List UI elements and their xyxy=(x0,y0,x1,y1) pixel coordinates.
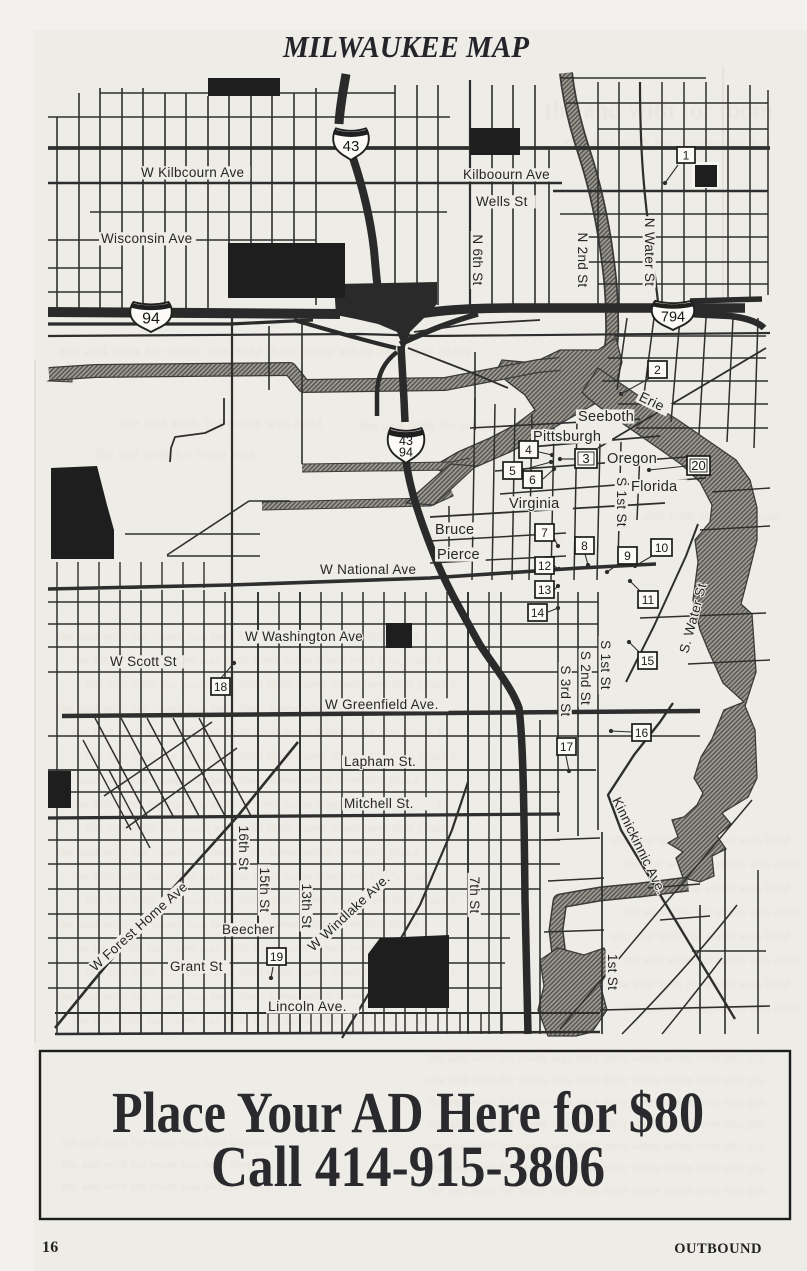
svg-text:W National Ave: W National Ave xyxy=(320,562,416,577)
svg-text:Seeboth: Seeboth xyxy=(578,409,634,425)
svg-text:Mitchell St.: Mitchell St. xyxy=(344,796,414,811)
svg-text:N 6th St: N 6th St xyxy=(470,234,485,285)
svg-text:the and with for room was held: the and with for room was held their som… xyxy=(72,1012,442,1027)
svg-text:794: 794 xyxy=(661,310,685,326)
svg-text:3: 3 xyxy=(582,451,589,466)
svg-text:the and with for room was held: the and with for room was held their som… xyxy=(58,628,428,643)
svg-text:S 1st St: S 1st St xyxy=(598,640,613,690)
svg-text:94: 94 xyxy=(399,446,413,460)
svg-text:12: 12 xyxy=(538,559,552,573)
svg-text:5: 5 xyxy=(509,464,516,478)
svg-text:13th St: 13th St xyxy=(299,884,314,929)
svg-text:W Kilbcourn Ave: W Kilbcourn Ave xyxy=(141,165,244,180)
svg-text:W Greenfield Ave.: W Greenfield Ave. xyxy=(325,697,439,712)
svg-text:1: 1 xyxy=(683,148,690,162)
svg-text:Pittsburgh: Pittsburgh xyxy=(533,429,601,445)
svg-text:4: 4 xyxy=(525,443,532,457)
svg-text:7: 7 xyxy=(541,526,548,540)
svg-text:Florida: Florida xyxy=(631,479,678,495)
svg-text:Call 414-915-3806: Call 414-915-3806 xyxy=(211,1134,605,1199)
svg-text:94: 94 xyxy=(142,310,160,327)
svg-text:Oregon: Oregon xyxy=(607,451,657,467)
svg-text:the and with for room was held: the and with for room was held xyxy=(120,416,322,432)
svg-text:11: 11 xyxy=(642,593,655,607)
svg-text:8: 8 xyxy=(581,539,588,553)
svg-text:9: 9 xyxy=(624,549,631,563)
svg-text:16: 16 xyxy=(635,726,649,740)
svg-text:15: 15 xyxy=(641,654,655,668)
svg-text:the and with for room was held: the and with for room was held xyxy=(622,904,799,919)
svg-text:2: 2 xyxy=(654,363,661,377)
svg-text:W Washington Ave: W Washington Ave xyxy=(245,629,363,644)
svg-text:20: 20 xyxy=(691,458,705,473)
svg-text:10: 10 xyxy=(655,541,669,555)
svg-text:W Scott St: W Scott St xyxy=(110,654,177,669)
svg-text:19: 19 xyxy=(270,950,284,964)
svg-text:14: 14 xyxy=(531,606,545,620)
svg-text:13: 13 xyxy=(538,583,552,597)
svg-text:Wisconsin Ave: Wisconsin Ave xyxy=(101,231,192,246)
svg-text:the and with for room was: the and with for room was xyxy=(95,447,255,462)
svg-text:15th St: 15th St xyxy=(257,868,272,913)
svg-text:MILWAUKEE MAP: MILWAUKEE MAP xyxy=(282,30,529,64)
svg-text:7th St: 7th St xyxy=(467,876,482,913)
svg-text:Wells St: Wells St xyxy=(476,194,528,209)
svg-text:the and with for room was held: the and with for room was held xyxy=(622,952,799,967)
svg-text:the and with for room was held: the and with for room was held their som… xyxy=(428,1051,765,1065)
svg-text:18: 18 xyxy=(214,680,228,694)
svg-text:S 1st St: S 1st St xyxy=(614,477,629,527)
svg-text:Kilboourn Ave: Kilboourn Ave xyxy=(463,167,550,182)
svg-text:Virginia: Virginia xyxy=(509,496,560,512)
svg-text:Lincoln Ave.: Lincoln Ave. xyxy=(268,998,347,1014)
svg-text:S 2nd St: S 2nd St xyxy=(578,651,593,705)
svg-text:Pierce: Pierce xyxy=(437,547,480,563)
svg-text:16: 16 xyxy=(42,1239,59,1256)
svg-text:17: 17 xyxy=(560,740,574,754)
svg-text:Bruce: Bruce xyxy=(435,522,474,538)
svg-text:Grant St: Grant St xyxy=(170,959,223,974)
svg-text:Beecher: Beecher xyxy=(222,922,275,937)
svg-text:N Water St: N Water St xyxy=(642,218,657,287)
svg-text:S 3rd St: S 3rd St xyxy=(558,665,573,716)
svg-text:43: 43 xyxy=(343,138,360,155)
svg-text:N 2nd St: N 2nd St xyxy=(575,233,590,288)
svg-text:the and with for room was held: the and with for room was held their som… xyxy=(60,344,473,360)
svg-text:Lapham St.: Lapham St. xyxy=(344,754,416,769)
svg-text:16th St: 16th St xyxy=(236,826,251,871)
svg-text:OUTBOUND: OUTBOUND xyxy=(674,1241,762,1257)
svg-text:6: 6 xyxy=(529,473,536,487)
svg-text:1st St: 1st St xyxy=(605,954,620,990)
